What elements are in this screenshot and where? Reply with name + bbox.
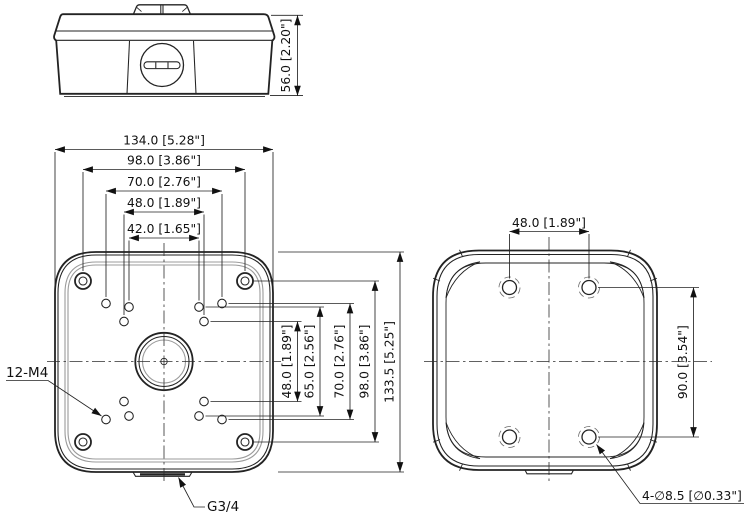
corner-screw [75, 273, 91, 289]
thread-label-text: 12-M4 [6, 365, 48, 381]
front-height-dim-0: 48.0 [1.89"] [280, 325, 294, 399]
front-thread-callout: 12-M4 [6, 365, 102, 416]
side-lid-crease-lines [55, 31, 274, 40]
technical-drawing: 56.0 [2.20"] [0, 0, 749, 521]
m4-hole [125, 412, 134, 421]
m4-hole [125, 303, 134, 312]
corner-screw [237, 273, 253, 289]
m4-hole [218, 299, 227, 308]
back-view: 48.0 [1.89"] 90.0 [3.54"] 4-∅8.5 [∅0.33"… [424, 216, 744, 504]
mount-holes-label-text: 4-∅8.5 [∅0.33"] [642, 489, 742, 503]
side-height-dim-text: 56.0 [2.20"] [279, 19, 293, 93]
front-width-dim-4: 42.0 [1.65"] [127, 222, 201, 236]
back-centerlines [424, 237, 712, 483]
side-knockout-circle [141, 44, 184, 87]
mount-hole [579, 427, 600, 448]
m4-hole [200, 317, 209, 326]
front-width-dim-0: 134.0 [5.28"] [123, 134, 205, 148]
side-knockout-slot [144, 62, 180, 69]
m4-hole [102, 299, 111, 308]
side-body-outline [54, 14, 274, 94]
conduit-label-text: G3/4 [207, 499, 239, 515]
mount-hole [579, 277, 600, 298]
back-second-outline [437, 255, 653, 467]
back-hole-spacing-h-text: 48.0 [1.89"] [512, 216, 586, 230]
drawing-canvas: 56.0 [2.20"] [0, 0, 749, 521]
front-centerlines [47, 243, 281, 481]
corner-screw [75, 434, 91, 450]
m4-hole [200, 397, 209, 406]
m4-hole [102, 415, 111, 424]
front-view: 134.0 [5.28"] 98.0 [3.86"] 70.0 [2.76"] … [6, 134, 404, 516]
side-view: 56.0 [2.20"] [54, 5, 303, 97]
side-top-cap [134, 5, 191, 14]
back-hole-callout: 4-∅8.5 [∅0.33"] [597, 445, 745, 504]
front-height-dim-1: 65.0 [2.56"] [303, 325, 317, 399]
front-conduit-callout: G3/4 [179, 478, 240, 516]
front-height-dim-4: 133.5 [5.25"] [383, 321, 397, 403]
m4-hole [195, 303, 204, 312]
mount-hole [499, 277, 520, 298]
back-inner-face-line [446, 263, 644, 457]
mount-hole [499, 427, 520, 448]
front-width-dim-2: 70.0 [2.76"] [127, 175, 201, 189]
back-hole-spacing-v-text: 90.0 [3.54"] [676, 325, 690, 399]
front-width-dim-3: 48.0 [1.89"] [127, 196, 201, 210]
front-height-dim-3: 98.0 [3.86"] [358, 325, 372, 399]
m4-hole [120, 317, 129, 326]
m4-hole [218, 415, 227, 424]
m4-hole [120, 397, 129, 406]
back-corner-details [433, 250, 657, 471]
m4-hole [195, 412, 204, 421]
corner-screw [237, 434, 253, 450]
front-height-dim-2: 70.0 [2.76"] [333, 325, 347, 399]
front-width-dim-1: 98.0 [3.86"] [127, 154, 201, 168]
